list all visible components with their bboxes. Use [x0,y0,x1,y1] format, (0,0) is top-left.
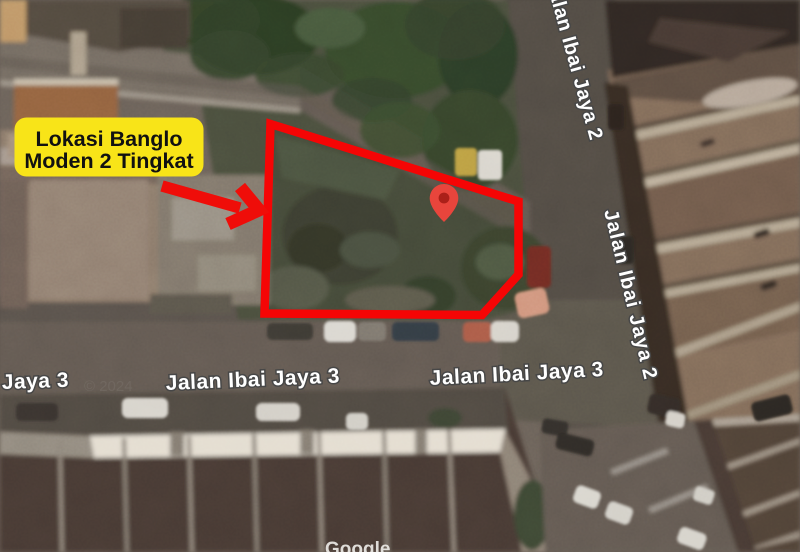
svg-text:© 2024: © 2024 [84,378,133,395]
svg-text:Lokasi Banglo: Lokasi Banglo [36,127,183,151]
svg-text:Jaya 3: Jaya 3 [1,369,69,394]
svg-text:Moden 2 Tingkat: Moden 2 Tingkat [24,149,193,173]
svg-text:Google: Google [325,539,390,552]
